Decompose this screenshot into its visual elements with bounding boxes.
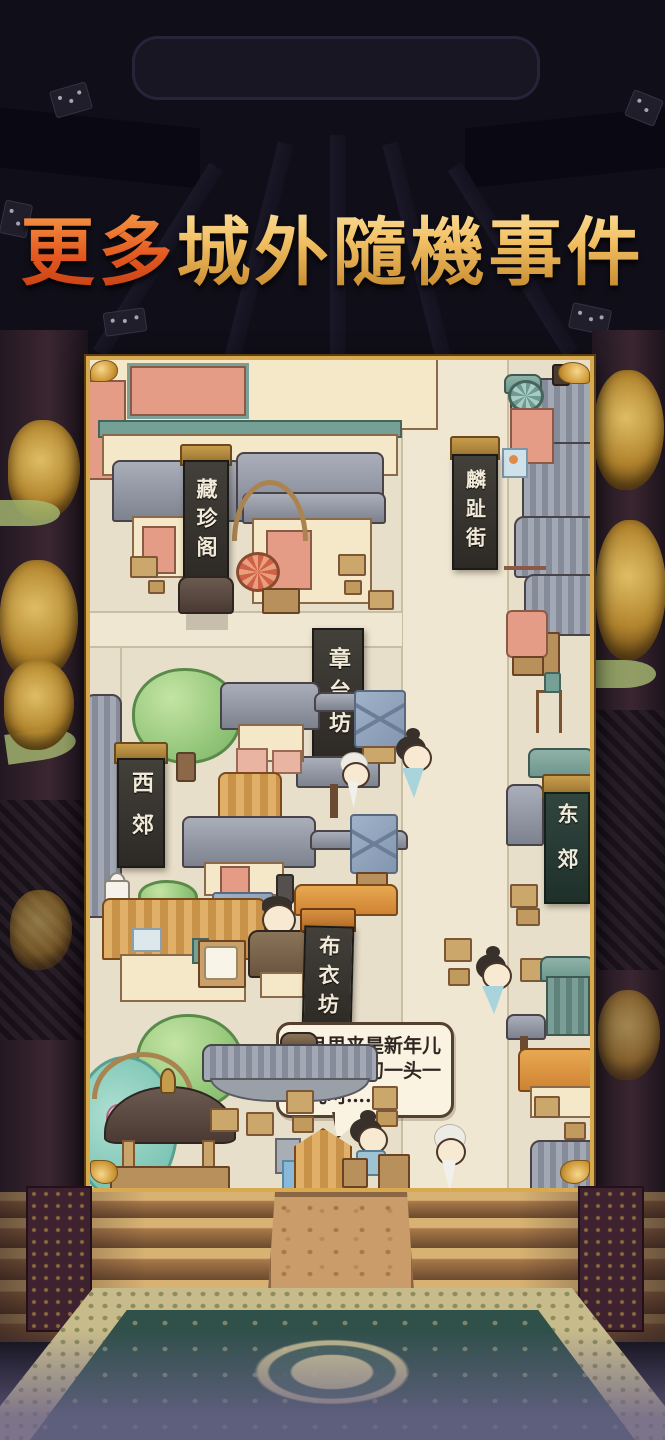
corridor-roof [202,1044,378,1082]
carry-basket [378,1154,410,1188]
pavilion-finial [160,1068,176,1094]
dragon-column-left [0,330,88,1200]
stool-sprite [516,908,540,926]
stool-sprite [564,1122,586,1140]
page-title: 更多城外隨機事件 [0,196,665,300]
carry-basket [342,1158,368,1188]
table-sprite [210,1108,239,1132]
building-panel [130,366,246,416]
table-sprite [534,1096,560,1118]
town-map[interactable]: 藏珍阁 麟趾街 [90,360,590,1188]
table-sprite [246,1112,274,1136]
house-roof [182,816,316,868]
banner-post [330,784,338,818]
table-sprite [372,1086,398,1110]
frame-ornament [90,360,118,382]
tree-trunk [176,752,196,782]
banner-label: 藏珍阁 [191,478,221,565]
location-banner-dongjiao[interactable]: 东郊 [544,792,590,904]
table-sprite [286,1090,314,1114]
street-edge [507,360,509,1188]
banner-label: 布衣坊 [312,934,344,1022]
roof-silhouette-left [0,107,200,188]
clothesline-cloth [272,750,302,774]
table-sprite [368,590,394,610]
banner-label: 西郊 [125,771,157,855]
crate [262,588,300,614]
table-sprite [338,554,366,576]
pink-stall [506,610,548,658]
east-side-roof [506,784,544,846]
mahjong-tile [103,307,148,337]
table-sprite [444,938,472,962]
table-sprite [510,884,538,908]
banner-label: 麟趾街 [461,469,490,556]
mahjong-tile [49,81,93,118]
frame-ornament [558,362,590,384]
pink-stall [504,566,546,570]
market-tent [354,690,406,748]
town-map-panel[interactable]: 藏珍阁 麟趾街 [86,356,594,1192]
location-banner-xijiao[interactable]: 西郊 [117,758,165,868]
tall-roof [248,930,310,978]
table-sprite [130,556,158,578]
clothesline-cloth [236,748,268,774]
street-edge [90,611,402,613]
teal-tower-body [546,976,590,1036]
stool-sprite [148,580,165,594]
location-banner-linzhijie[interactable]: 麟趾街 [452,454,498,570]
hanging-sign-post [536,690,562,733]
teal-pot [544,672,561,693]
stool-sprite [448,968,470,986]
bottom-fog [0,1330,665,1440]
stool-sprite [292,1116,314,1133]
stall-table [512,656,544,676]
banner-label: 东郊 [552,803,582,893]
paper-screen [204,946,238,980]
location-banner-buyifang[interactable]: 布衣坊 [302,925,355,1030]
title-rest: 城外隨機事件 [177,193,645,300]
awning [132,928,162,952]
npc-woman2-face[interactable] [482,962,512,990]
temple-plaque [132,36,540,100]
market-tent [350,814,398,874]
flag-dot [509,455,518,464]
dragon-column-right [592,330,665,1200]
title-highlight: 更多 [21,193,177,300]
banner-base [178,576,234,614]
house-roof [220,682,320,730]
parasol-wheel [236,552,280,592]
pavilion-platform [110,1166,230,1188]
game-screen: 更多城外隨機事件 [0,0,665,1440]
stool-sprite [344,580,362,595]
tall-roof-wall [260,972,304,998]
location-banner-cangzhenge[interactable]: 藏珍阁 [183,460,229,582]
npc-woman-face[interactable] [402,744,432,772]
frame-ornament [90,1160,118,1184]
